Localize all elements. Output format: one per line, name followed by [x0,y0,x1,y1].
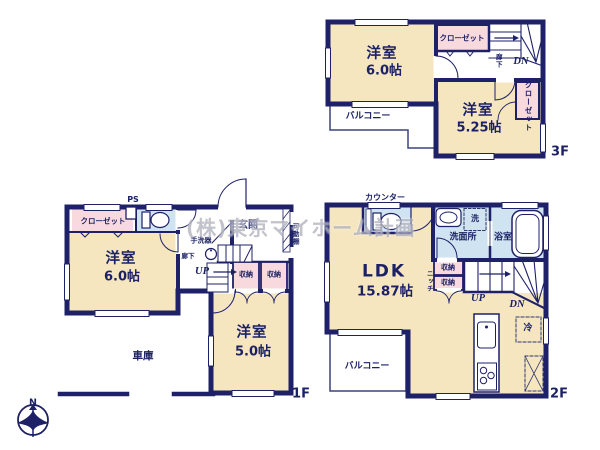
washroom-label-2f: 洗面所 [449,234,476,243]
hallway-label-1f: 廊下 [182,253,195,260]
sink-icon [436,209,461,227]
balcony-label-3f: バルコニー [346,113,391,122]
floor-label-2f: 2F [550,388,568,401]
compass-north-label: N [29,398,37,408]
garage-label-1f: 車庫 [133,351,154,362]
niche-label-2f: ニッチ [426,270,433,293]
storage-label-1f-a: 収納 [239,272,253,279]
refrigerator-label-2f: 冷 [523,325,532,334]
bathroom-label-2f: 浴室 [494,234,512,243]
closet-label-3f-top: クローゼット [440,34,485,42]
washer-label-2f: 洗 [471,215,479,223]
storage-label-2f-b: 収納 [441,280,455,287]
stairs-up-label-2f: UP [471,294,485,305]
room-size-1f-bedroom-a: 6.0帖 [104,271,140,284]
room-size-3f-bedroom-a: 6.0帖 [366,65,402,78]
hand-basin-icon [206,249,217,260]
room-label-3f-bedroom-b: 洋室 [463,104,494,119]
room-size-3f-bedroom-b: 5.25帖 [456,122,501,135]
compass-icon [17,404,49,437]
storage-label-1f-b: 収納 [267,272,281,279]
kitchen-counter [474,314,499,392]
toilet-icon-1f [142,212,169,228]
room-size-2f-ldk: 15.87帖 [357,285,413,299]
balcony-label-2f: バルコニー [345,363,390,372]
room-label-1f-bedroom-a: 洋室 [106,252,137,267]
room-size-1f-bedroom-b: 5.0帖 [235,346,271,359]
storage-label-2f-a: 収納 [441,265,455,272]
watermark: (株)東京マイホーム計画 [186,212,416,241]
stairs-dn-label-3f: DN [513,57,528,68]
hallway-label-3f: 廊下 [495,54,502,69]
room-label-2f-ldk: LDK [362,264,406,281]
ps-label-1f: PS [127,196,139,204]
room-label-1f-bedroom-b: 洋室 [237,326,268,341]
floor-label-3f: 3F [551,146,569,159]
stairs-dn-label-2f: DN [509,300,524,311]
closet-label-1f: クローゼット [81,217,126,225]
closet-label-3f-side: クローゼット [523,81,533,119]
counter-label-2f: カウンター [365,194,405,202]
floorplan: 洋室 6.0帖 クローゼット 廊下 DN 洋室 5.25帖 クローゼット バルコ… [0,0,600,450]
floor-label-1f: 1F [292,388,310,401]
room-label-3f-bedroom-a: 洋室 [367,47,398,62]
floor3-plan [326,20,546,160]
stairs-up-label-1f: UP [195,267,209,278]
bathtub-icon [512,211,543,258]
